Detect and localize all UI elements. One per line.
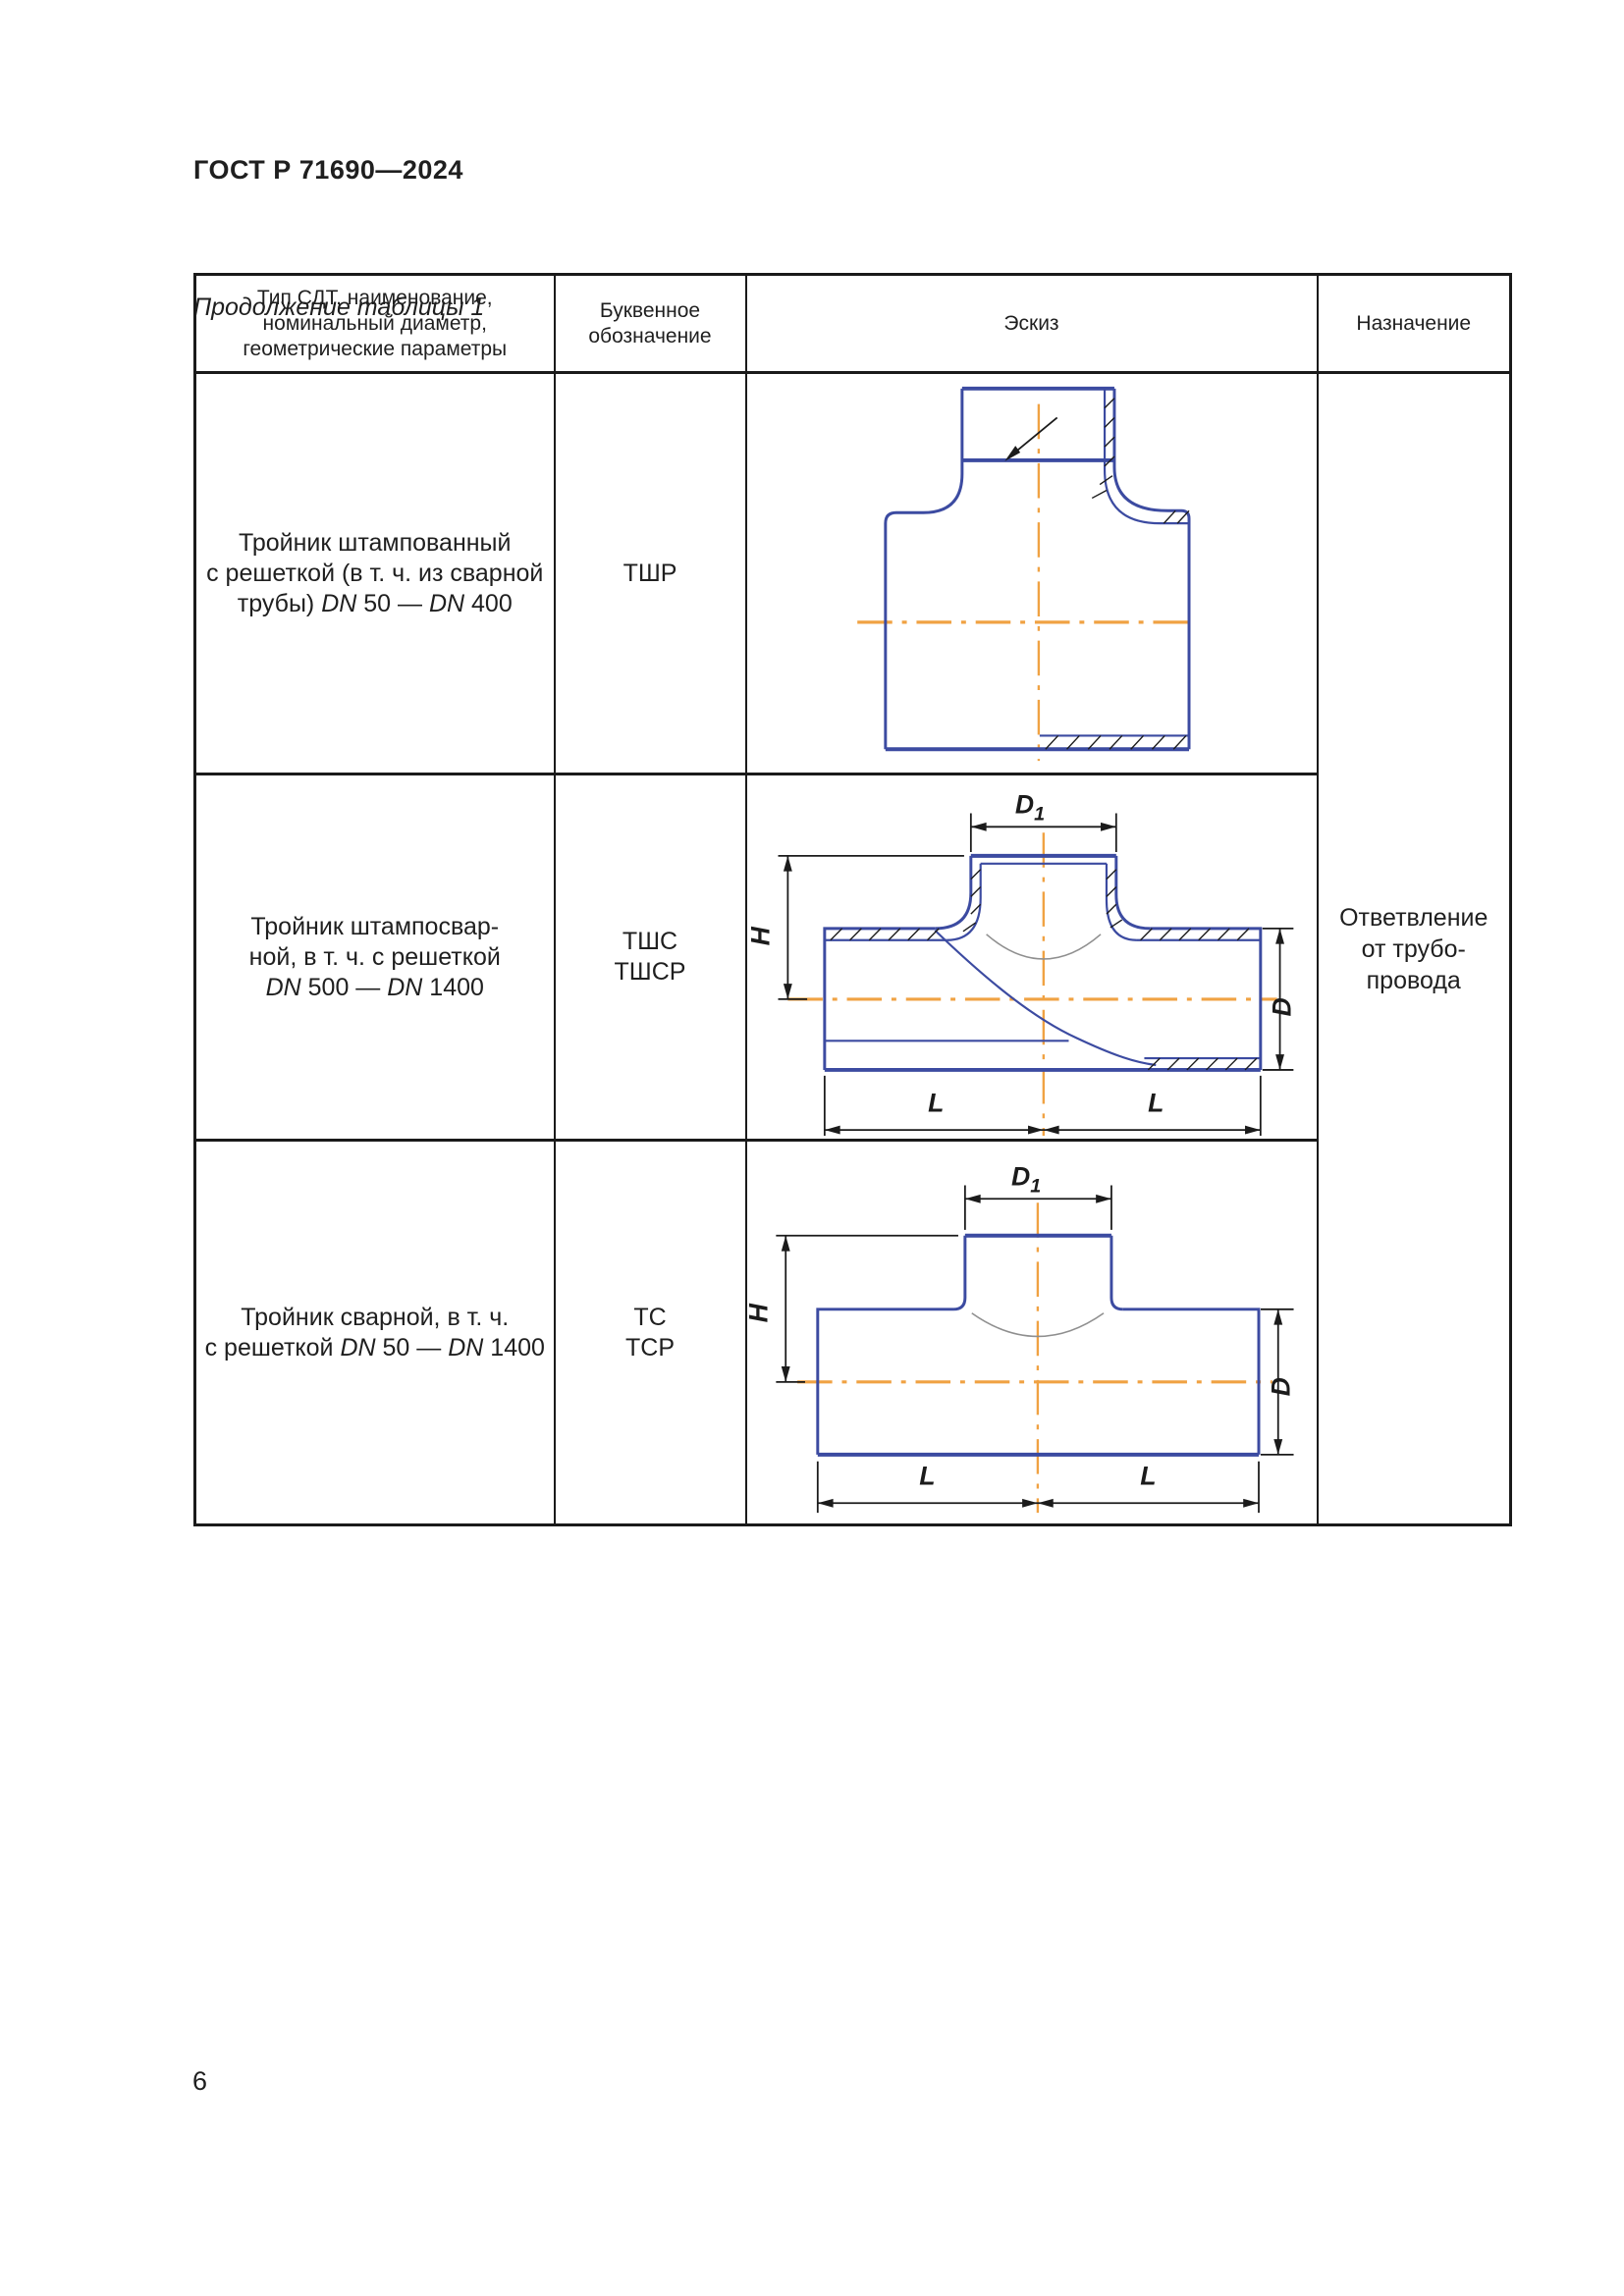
doc-number: ГОСТ Р 71690—2024 bbox=[193, 155, 463, 186]
fitting-name-cell: Тройник штампованный с решеткой (в т. ч.… bbox=[195, 373, 555, 774]
dim-label-l-right: L bbox=[1140, 1461, 1156, 1490]
page-number: 6 bbox=[192, 2066, 207, 2097]
header-col-purpose: Назначение bbox=[1318, 275, 1511, 373]
dim-label-l-left: L bbox=[919, 1461, 935, 1490]
header-col-type: Тип СДТ, наименование, номинальный диаме… bbox=[195, 275, 555, 373]
tee-stamp-welded-drawing: D1 H bbox=[747, 776, 1315, 1138]
dim-label-d1-sub: 1 bbox=[1030, 1175, 1041, 1197]
table-row: Тройник штампованный с решеткой (в т. ч.… bbox=[195, 373, 1511, 774]
fitting-name-cell: Тройник сварной, в т. ч. с решеткой DN 5… bbox=[195, 1141, 555, 1525]
dim-label-l-right: L bbox=[1148, 1088, 1164, 1117]
tee-stamped-drawing bbox=[747, 375, 1315, 772]
document-page: ГОСТ Р 71690—2024 Продолжение таблицы 1 … bbox=[0, 0, 1624, 2296]
dim-d: D bbox=[1260, 1309, 1295, 1455]
weld-arrow-icon bbox=[1004, 417, 1056, 460]
header-col-letter: Буквенное обозначение bbox=[555, 275, 746, 373]
table-row: Тройник штампосвар- ной, в т. ч. с решет… bbox=[195, 774, 1511, 1141]
tee-welded-drawing: D1 H bbox=[747, 1143, 1315, 1522]
fitting-code-cell: ТС ТСР bbox=[555, 1141, 746, 1525]
header-col-sketch: Эскиз bbox=[746, 275, 1318, 373]
dim-label-d: D bbox=[1267, 997, 1296, 1016]
tee-outline bbox=[885, 389, 1188, 749]
section-hatching bbox=[1045, 399, 1188, 750]
fittings-table: Тип СДТ, наименование, номинальный диаме… bbox=[193, 273, 1512, 1526]
sketch-cell-tshr bbox=[746, 373, 1318, 774]
dim-label-d1: D1 bbox=[1010, 1161, 1040, 1197]
table-row: Тройник сварной, в т. ч. с решеткой DN 5… bbox=[195, 1141, 1511, 1525]
purpose-cell: Ответвление от трубо- провода bbox=[1318, 373, 1511, 1525]
centerlines bbox=[797, 1202, 1272, 1513]
table-header-row: Тип СДТ, наименование, номинальный диаме… bbox=[195, 275, 1511, 373]
centerlines bbox=[857, 404, 1197, 762]
centerlines bbox=[787, 832, 1276, 1136]
dim-label-h: H bbox=[747, 1303, 773, 1322]
dim-label-h: H bbox=[747, 926, 776, 945]
fitting-code-cell: ТШР bbox=[555, 373, 746, 774]
fitting-name-cell: Тройник штампосвар- ной, в т. ч. с решет… bbox=[195, 774, 555, 1141]
dim-label-d1-sub: 1 bbox=[1034, 803, 1045, 825]
dim-label-d1: D1 bbox=[1014, 789, 1044, 825]
sketch-cell-ts: D1 H bbox=[746, 1141, 1318, 1525]
dim-label-l-left: L bbox=[928, 1088, 944, 1117]
sketch-cell-tshs: D1 H bbox=[746, 774, 1318, 1141]
fitting-code-cell: ТШС ТШСР bbox=[555, 774, 746, 1141]
dim-d: D bbox=[1262, 929, 1296, 1070]
dim-label-d: D bbox=[1266, 1377, 1295, 1396]
